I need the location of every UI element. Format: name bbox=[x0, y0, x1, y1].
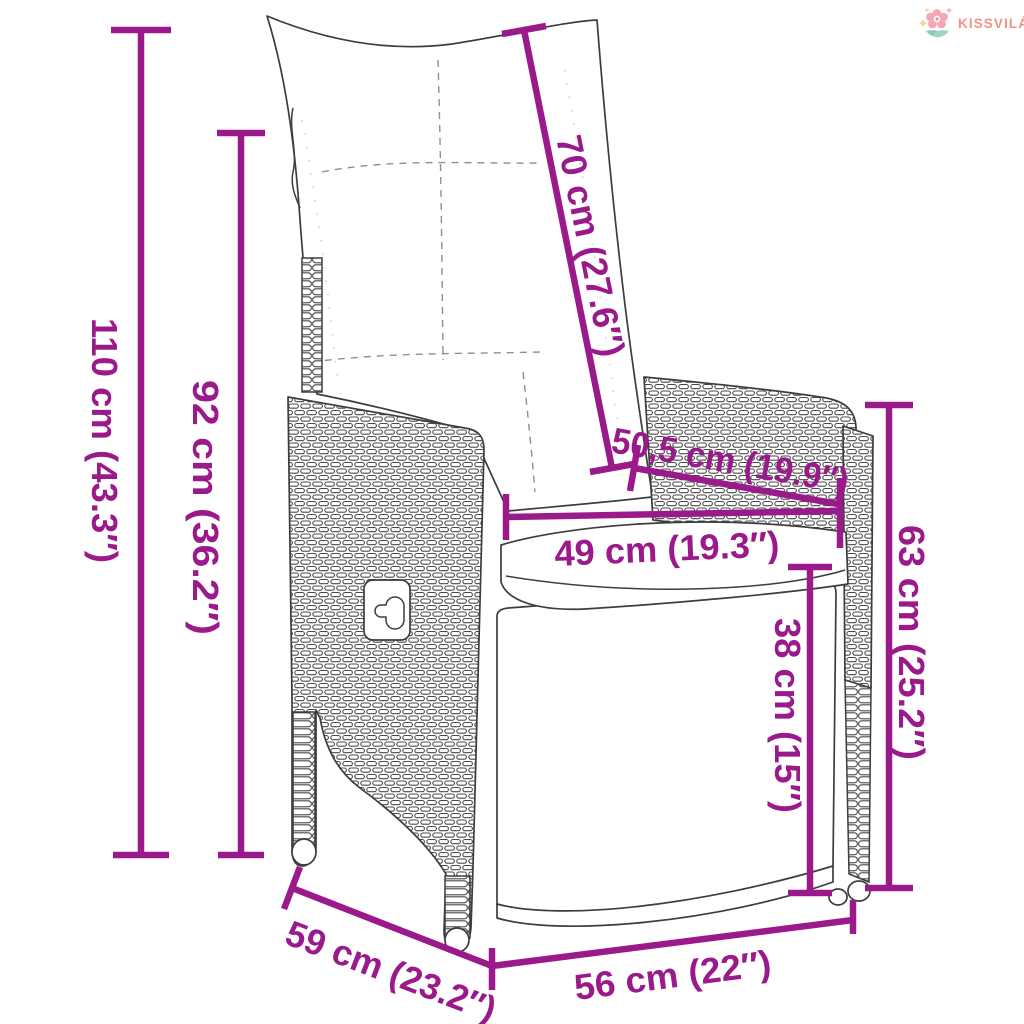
diagram-canvas: 110 cm (43.3″) 92 cm (36.2″) 70 cm (27.6… bbox=[0, 0, 1024, 1024]
measurement-label-back-height: 92 cm (36.2″) bbox=[185, 380, 226, 635]
measurement-label-seat-height: 38 cm (15″) bbox=[767, 618, 808, 813]
flower-icon bbox=[919, 7, 953, 37]
product-dimension-diagram: 110 cm (43.3″) 92 cm (36.2″) 70 cm (27.6… bbox=[0, 0, 1024, 1024]
measurement-back-height: 92 cm (36.2″) bbox=[185, 133, 265, 855]
recline-adjuster bbox=[364, 580, 410, 640]
sparkle-small bbox=[925, 8, 930, 13]
right-arm-column bbox=[843, 426, 873, 901]
back-frame-post bbox=[302, 258, 322, 392]
sparkle-yellow bbox=[919, 19, 928, 28]
sparkle-pink bbox=[946, 7, 953, 14]
brand-logo: KISSVILÁG bbox=[919, 7, 1024, 37]
measurement-armrest-height: 63 cm (25.2″) bbox=[865, 405, 932, 888]
brand-name: KISSVILÁG bbox=[958, 16, 1024, 31]
measurement-label-armrest-height: 63 cm (25.2″) bbox=[891, 525, 932, 760]
measurement-overall-height: 110 cm (43.3″) bbox=[84, 30, 171, 855]
front-left-foot bbox=[292, 839, 316, 865]
left-side-panel bbox=[288, 397, 484, 952]
measurement-label-overall-height: 110 cm (43.3″) bbox=[84, 318, 125, 563]
front-left-leg bbox=[293, 712, 315, 846]
